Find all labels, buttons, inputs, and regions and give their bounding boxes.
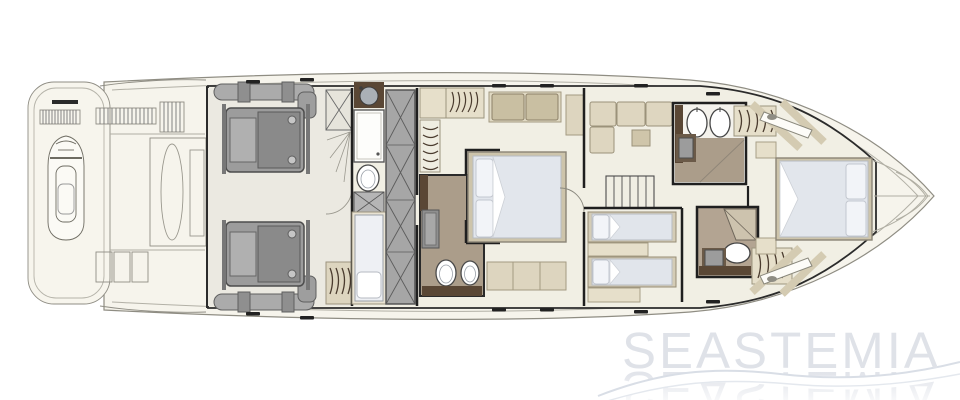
vip-nightstand-starboard: [756, 238, 776, 254]
vip-nightstand-port: [756, 142, 776, 158]
master-shower: [422, 210, 439, 248]
mid-toilet: [724, 243, 750, 263]
day-head-sink: [676, 134, 696, 162]
port-engine: [214, 82, 316, 174]
master-sofa: [489, 92, 561, 122]
mid-sink: [702, 248, 726, 268]
staircase: [606, 176, 654, 208]
master-wardrobe-top: [420, 88, 484, 118]
master-bathroom-wall: [420, 175, 428, 211]
master-nightstand: [566, 95, 584, 135]
crew-hanging-locker: [326, 262, 352, 304]
crew-sink-unit: [354, 82, 384, 108]
crew-berth: [352, 212, 386, 304]
twin-cabinet: [588, 288, 640, 302]
watermark-text: SEASTEMIA: [622, 322, 941, 379]
yacht-deck-plan-canvas: SEASTEMIA SEASTEMIA: [0, 0, 960, 400]
twin-bed-1: [588, 212, 676, 242]
crew-shower: [354, 110, 384, 162]
master-vanity: [422, 286, 482, 296]
master-wardrobe-side: [420, 120, 440, 172]
twin-bed-2: [588, 257, 676, 287]
watermark: SEASTEMIA SEASTEMIA: [598, 322, 960, 400]
lounge-table: [632, 130, 650, 146]
starboard-engine: [214, 220, 316, 312]
stern-cleat: [52, 100, 78, 104]
crew-wardrobe: [386, 90, 415, 304]
master-bed: [468, 152, 566, 242]
master-bidet: [461, 261, 479, 285]
mid-vanity: [699, 266, 751, 275]
crew-toilet: [357, 165, 379, 191]
master-toilet: [436, 260, 456, 286]
twin-nightstand: [588, 243, 648, 256]
master-cabinet: [487, 262, 566, 290]
jet-ski: [48, 136, 84, 240]
vip-bed: [776, 158, 872, 240]
